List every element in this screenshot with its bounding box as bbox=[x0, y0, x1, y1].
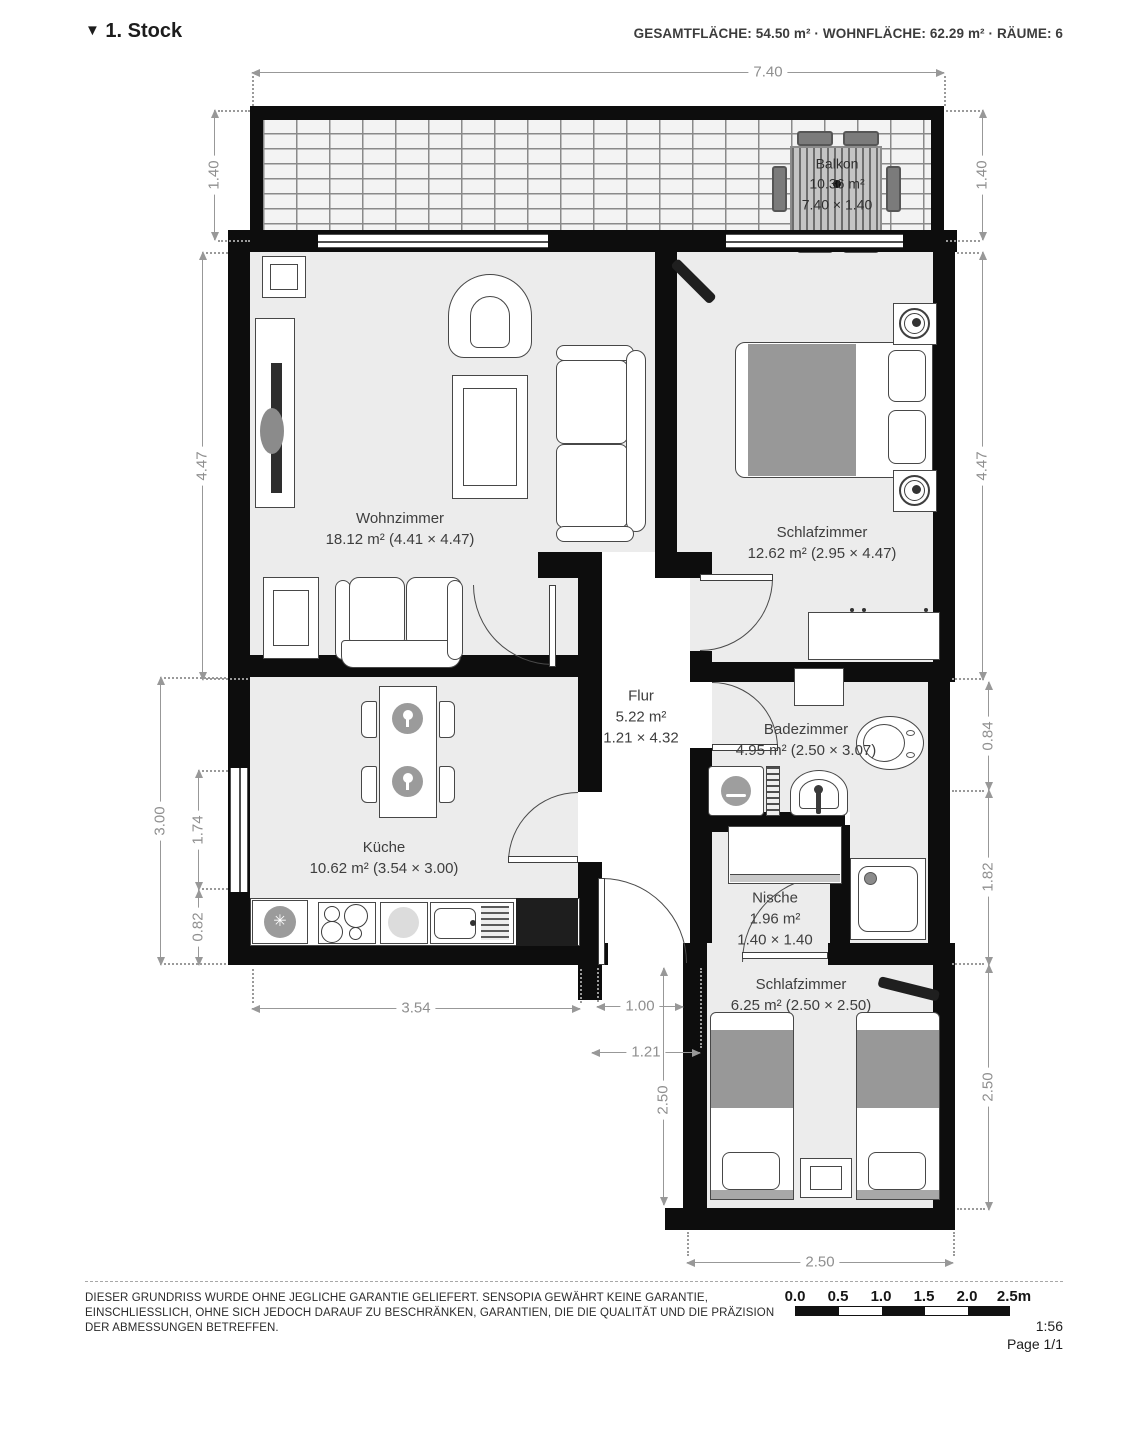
bedroom-door bbox=[700, 574, 773, 581]
wall bbox=[228, 943, 608, 965]
room-size: 4.95 m² (2.50 × 3.07) bbox=[736, 740, 877, 761]
window bbox=[230, 768, 248, 892]
armchair-cushion bbox=[470, 296, 510, 348]
extension-line bbox=[687, 1232, 689, 1256]
dim-label: 0.84 bbox=[980, 716, 997, 755]
toilet-bolt bbox=[906, 752, 915, 758]
window bbox=[726, 234, 903, 248]
extension-line bbox=[953, 1232, 955, 1256]
sofa-armrest bbox=[556, 345, 634, 361]
pillow bbox=[888, 350, 926, 402]
wall bbox=[928, 682, 950, 965]
nightstand-inner bbox=[810, 1166, 842, 1190]
extension-line bbox=[952, 790, 984, 792]
burner bbox=[321, 921, 343, 943]
loveseat-seat bbox=[349, 577, 405, 643]
burner bbox=[344, 904, 368, 928]
loveseat-armrest bbox=[447, 580, 463, 660]
balcony-chair bbox=[843, 131, 879, 146]
dim-label: 4.47 bbox=[974, 446, 991, 485]
disclaimer-line: DIESER GRUNDRISS WURDE OHNE JEGLICHE GAR… bbox=[85, 1292, 708, 1304]
bed-blanket bbox=[857, 1030, 939, 1108]
bath-wall-cabinet bbox=[794, 668, 844, 706]
bed-foot-strip bbox=[857, 1190, 939, 1199]
picture-table-inner bbox=[273, 590, 309, 646]
scale-ratio: 1:56 bbox=[1036, 1318, 1063, 1334]
wall bbox=[931, 106, 944, 242]
side-table-inner bbox=[270, 264, 298, 290]
sofa-armrest bbox=[556, 526, 634, 542]
scale-tick: 0.5 bbox=[828, 1288, 849, 1305]
pendant-light-stem bbox=[406, 782, 409, 790]
coffee-table-inner bbox=[463, 388, 517, 486]
room-area: 1.96 m² bbox=[737, 909, 812, 930]
bed-blanket bbox=[748, 344, 856, 476]
chair bbox=[439, 701, 455, 738]
lamp-icon-dot bbox=[912, 318, 921, 327]
dim-label: 1.00 bbox=[620, 998, 659, 1015]
bed-foot-strip bbox=[711, 1190, 793, 1199]
room-size: 10.62 m² (3.54 × 3.00) bbox=[310, 858, 459, 879]
scale-tick: 0.0 bbox=[785, 1288, 806, 1305]
balcony-chair bbox=[772, 166, 787, 212]
drain-icon bbox=[864, 872, 877, 885]
entrance-door bbox=[598, 878, 605, 965]
dim-label: 2.50 bbox=[980, 1067, 997, 1106]
bedroom2-door bbox=[742, 952, 828, 959]
footer-divider bbox=[85, 1281, 1063, 1282]
dim-label: 4.47 bbox=[194, 446, 211, 485]
room-label-wohnzimmer: Wohnzimmer 18.12 m² (4.41 × 4.47) bbox=[326, 508, 475, 550]
extension-line bbox=[952, 963, 984, 965]
extension-line bbox=[580, 969, 582, 1003]
room-name: Balkon bbox=[802, 154, 872, 174]
pillow bbox=[888, 410, 926, 464]
toilet-bolt bbox=[906, 730, 915, 736]
dim-line bbox=[252, 72, 944, 73]
extension-line bbox=[700, 968, 702, 1048]
dim-label: 1.21 bbox=[626, 1044, 665, 1061]
disclaimer-line: EINSCHLIESSLICH, OHNE SICH JEDOCH DARAUF… bbox=[85, 1307, 774, 1319]
lamp-icon-dot bbox=[912, 485, 921, 494]
room-label-badezimmer: Badezimmer 4.95 m² (2.50 × 3.07) bbox=[736, 719, 877, 761]
extension-line bbox=[952, 678, 984, 680]
room-size: 1.21 × 4.32 bbox=[603, 728, 678, 749]
wall bbox=[250, 106, 944, 120]
room-name: Schlafzimmer bbox=[748, 522, 897, 543]
living-room-door bbox=[549, 585, 556, 667]
room-label-flur: Flur 5.22 m² 1.21 × 4.32 bbox=[603, 686, 678, 749]
room-size: 6.25 m² (2.50 × 2.50) bbox=[731, 995, 872, 1016]
sofa-seat bbox=[556, 360, 628, 444]
washing-machine-drum-icon bbox=[721, 776, 751, 806]
room-name: Schlafzimmer bbox=[731, 974, 872, 995]
kitchen-cabinet-dark bbox=[516, 898, 578, 946]
chair bbox=[361, 766, 377, 803]
dim-label: 3.00 bbox=[152, 801, 169, 840]
wall bbox=[665, 1208, 955, 1230]
extension-line bbox=[218, 110, 250, 112]
room-label-schlafzimmer2: Schlafzimmer 6.25 m² (2.50 × 2.50) bbox=[731, 974, 872, 1016]
washing-machine-wave bbox=[726, 794, 746, 797]
hood-icon bbox=[388, 907, 419, 938]
page-indicator: Page 1/1 bbox=[1007, 1336, 1063, 1352]
burner bbox=[324, 906, 340, 922]
dim-label: 1.74 bbox=[190, 810, 207, 849]
scale-tick: 2.5m bbox=[997, 1288, 1031, 1305]
extension-line bbox=[944, 76, 946, 106]
room-area: 5.22 m² bbox=[603, 707, 678, 728]
faucet-icon bbox=[470, 920, 476, 926]
burner bbox=[349, 927, 362, 940]
sofa-seat bbox=[556, 444, 628, 528]
dim-label: 0.82 bbox=[190, 907, 207, 946]
wall bbox=[690, 651, 712, 682]
wall bbox=[683, 943, 707, 1230]
extension-line bbox=[202, 770, 228, 772]
scale-tick: 2.0 bbox=[957, 1288, 978, 1305]
bed-blanket bbox=[711, 1030, 793, 1108]
room-name: Wohnzimmer bbox=[326, 508, 475, 529]
room-label-nische: Nische 1.96 m² 1.40 × 1.40 bbox=[737, 888, 812, 951]
dresser-knob bbox=[862, 608, 866, 612]
washbasin-tap-head bbox=[814, 785, 823, 794]
extension-line bbox=[946, 110, 980, 112]
dim-label: 3.54 bbox=[396, 1000, 435, 1017]
dresser-knob bbox=[850, 608, 854, 612]
room-label-balkon: Balkon 10.36 m² 7.40 × 1.40 bbox=[802, 154, 872, 215]
scale-tick: 1.5 bbox=[914, 1288, 935, 1305]
chair bbox=[361, 701, 377, 738]
disclaimer-line: DER ABMESSUNGEN BETREFFEN. bbox=[85, 1322, 279, 1334]
loveseat-backrest bbox=[341, 640, 461, 668]
room-label-schlafzimmer1: Schlafzimmer 12.62 m² (2.95 × 4.47) bbox=[748, 522, 897, 564]
room-name: Badezimmer bbox=[736, 719, 877, 740]
dim-label: 7.40 bbox=[748, 64, 787, 81]
snowflake-icon: ✳ bbox=[264, 906, 296, 938]
floor-plan: Balkon 10.36 m² 7.40 × 1.40 bbox=[0, 0, 1147, 1440]
scale-bar bbox=[795, 1306, 1010, 1316]
room-label-kueche: Küche 10.62 m² (3.54 × 3.00) bbox=[310, 837, 459, 879]
extension-line bbox=[202, 888, 228, 890]
extension-line bbox=[164, 963, 226, 965]
extension-line bbox=[957, 1208, 985, 1210]
dresser-knob bbox=[924, 608, 928, 612]
pendant-light-stem bbox=[406, 719, 409, 727]
dresser bbox=[808, 612, 940, 660]
room-size: 18.12 m² (4.41 × 4.47) bbox=[326, 529, 475, 550]
scale-tick: 1.0 bbox=[871, 1288, 892, 1305]
room-size: 7.40 × 1.40 bbox=[802, 194, 872, 214]
room-size: 1.40 × 1.40 bbox=[737, 930, 812, 951]
wall bbox=[578, 552, 602, 792]
room-size: 12.62 m² (2.95 × 4.47) bbox=[748, 543, 897, 564]
dim-label: 1.40 bbox=[974, 155, 991, 194]
wall bbox=[250, 106, 263, 242]
room-name: Nische bbox=[737, 888, 812, 909]
tv-screen-curve bbox=[260, 408, 284, 454]
dim-label: 2.50 bbox=[800, 1254, 839, 1271]
extension-line bbox=[206, 252, 228, 254]
extension-line bbox=[164, 677, 226, 679]
dim-label: 2.50 bbox=[655, 1080, 672, 1119]
extension-line bbox=[946, 240, 980, 242]
sink-drainer bbox=[481, 906, 509, 940]
wall bbox=[655, 252, 677, 578]
wall bbox=[828, 943, 955, 965]
extension-line bbox=[597, 968, 599, 1002]
dim-label: 1.82 bbox=[980, 857, 997, 896]
extension-line bbox=[218, 240, 250, 242]
extension-line bbox=[252, 969, 254, 1003]
washer-side-panel bbox=[766, 766, 780, 816]
chair bbox=[439, 766, 455, 803]
pillow bbox=[722, 1152, 780, 1190]
kitchen-door bbox=[508, 856, 578, 863]
extension-line bbox=[957, 252, 979, 254]
extension-line bbox=[252, 76, 254, 106]
dim-label: 1.40 bbox=[206, 155, 223, 194]
room-name: Flur bbox=[603, 686, 678, 707]
room-area: 10.36 m² bbox=[802, 174, 872, 194]
balcony-chair bbox=[797, 131, 833, 146]
pillow bbox=[868, 1152, 926, 1190]
wardrobe-shelf bbox=[730, 874, 840, 882]
sofa-backrest bbox=[626, 350, 646, 532]
balcony-chair bbox=[886, 166, 901, 212]
window bbox=[318, 234, 548, 248]
room-name: Küche bbox=[310, 837, 459, 858]
